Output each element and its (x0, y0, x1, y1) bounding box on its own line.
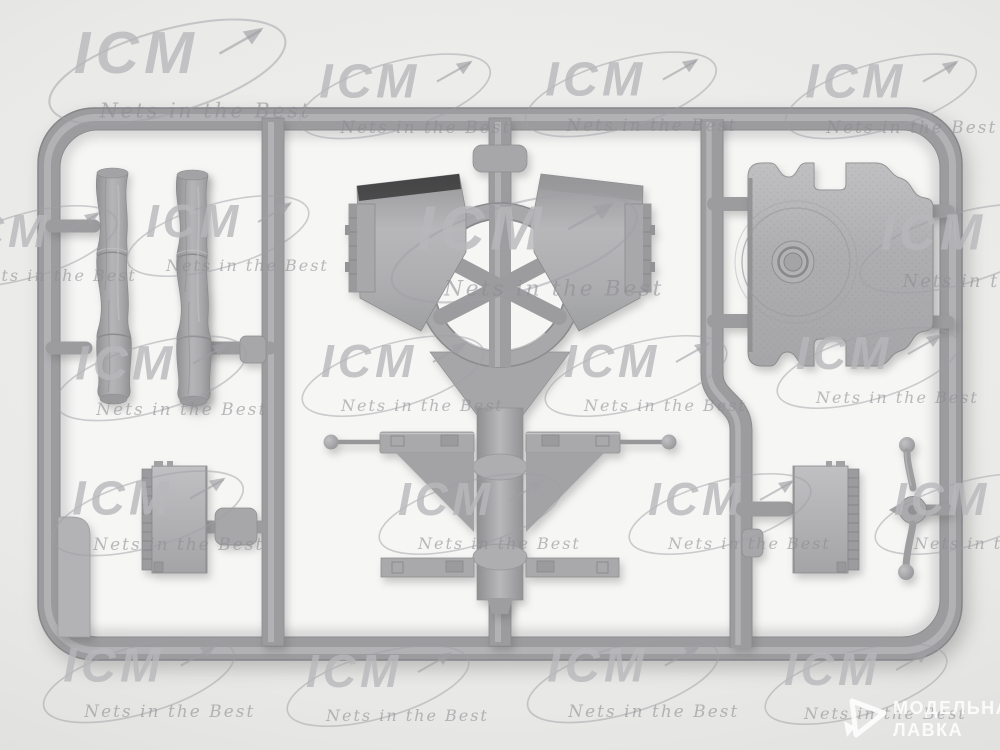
shop-logo-icon (842, 697, 888, 743)
part-box-left (142, 461, 207, 573)
shop-watermark: МОДЕЛЬНАЯ ЛАВКА (836, 694, 1000, 750)
wing-box-left (345, 204, 375, 292)
wing-box-right (625, 204, 655, 292)
sprue-photo: ICM Nets in the Best ICM Nets in the Bes… (0, 0, 1000, 750)
part-floor-plate (735, 163, 933, 366)
shop-name-line2: ЛАВКА (893, 720, 963, 741)
part-roll-1 (96, 168, 131, 404)
part-roll-2 (176, 170, 211, 406)
shop-name-line1: МОДЕЛЬНАЯ (893, 698, 1000, 719)
part-corner-plate (58, 517, 90, 637)
sprue-graphic (0, 0, 1000, 750)
part-box-right (793, 461, 859, 573)
